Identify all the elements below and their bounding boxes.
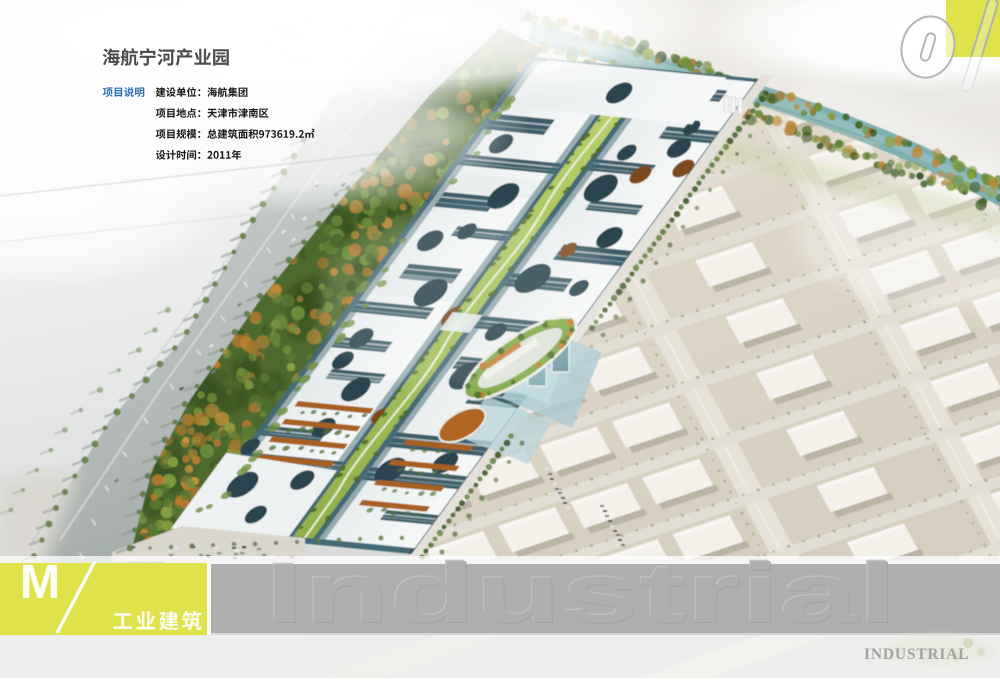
svg-text:Industrial: Industrial	[265, 546, 897, 640]
svg-text:M: M	[20, 556, 60, 609]
svg-text:INDUSTRIAL: INDUSTRIAL	[864, 646, 969, 663]
